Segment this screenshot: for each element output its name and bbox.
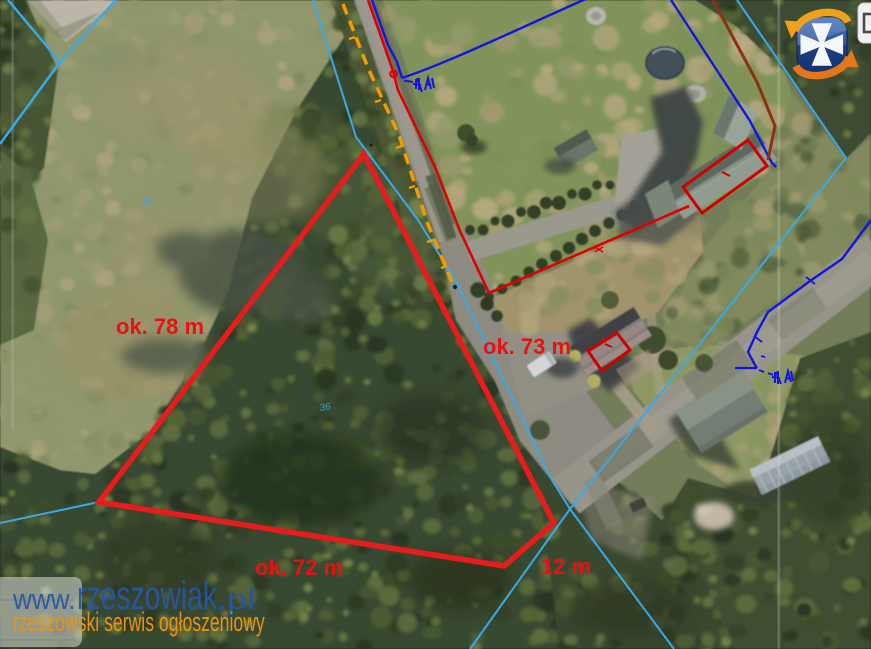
svg-text:ok. 73 m: ok. 73 m xyxy=(483,334,571,359)
svg-text:12 m: 12 m xyxy=(541,554,591,579)
svg-text:ok. 78 m: ok. 78 m xyxy=(116,314,204,339)
svg-text:rzeszowski serwis ogłoszeniowy: rzeszowski serwis ogłoszeniowy xyxy=(13,606,265,637)
svg-text:36: 36 xyxy=(141,195,154,208)
svg-text:ok. 72 m: ok. 72 m xyxy=(255,555,343,580)
svg-text:36: 36 xyxy=(319,401,332,414)
